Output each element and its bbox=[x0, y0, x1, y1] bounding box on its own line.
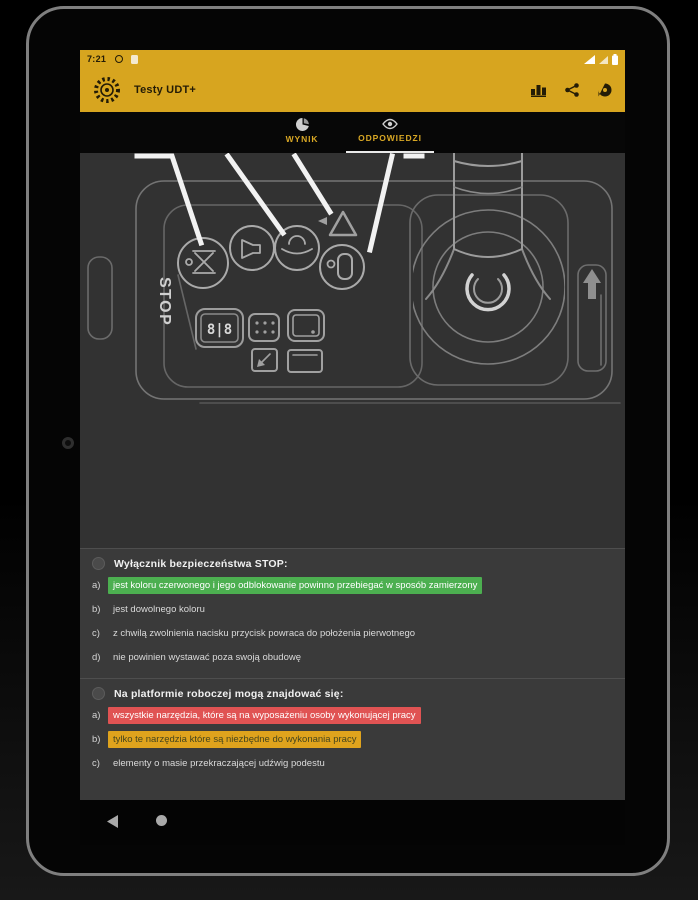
screen: 7:21 Testy UDT+ bbox=[80, 50, 625, 845]
home-button[interactable] bbox=[156, 815, 167, 826]
answer-letter: b) bbox=[92, 731, 108, 746]
screen-button bbox=[288, 310, 324, 341]
answer-letter: c) bbox=[92, 625, 108, 640]
diagonal-arrow-button bbox=[252, 349, 277, 371]
stop-label: STOP bbox=[156, 277, 173, 326]
answer-row: d) nie powinien wystawać poza swoją obud… bbox=[92, 649, 613, 666]
notification-ring-icon bbox=[115, 55, 123, 63]
question-block-2: Na platformie roboczej mogą znajdować si… bbox=[80, 678, 625, 784]
answer-letter: d) bbox=[92, 649, 108, 664]
scissor-lift-button bbox=[178, 238, 228, 288]
tab-wynik[interactable]: WYNIK bbox=[258, 112, 346, 153]
app-logo-icon bbox=[93, 76, 121, 104]
answer-text-correct: jest koloru czerwonego i jego odblokowan… bbox=[108, 577, 482, 594]
hour-meter-display: 8|8 bbox=[196, 309, 243, 347]
tab-bar: WYNIK ODPOWIEDZI bbox=[80, 112, 625, 153]
answer-row: a) jest koloru czerwonego i jego odbloko… bbox=[92, 577, 613, 594]
share-icon[interactable] bbox=[565, 83, 579, 97]
question-text: Na platformie roboczej mogą znajdować si… bbox=[114, 688, 344, 700]
back-button[interactable] bbox=[107, 815, 118, 828]
questions-panel: Wyłącznik bezpieczeństwa STOP: a) jest k… bbox=[80, 548, 625, 800]
pie-chart-icon bbox=[296, 118, 309, 131]
battery-icon bbox=[612, 54, 618, 65]
answer-text: nie powinien wystawać poza swoją obudowę bbox=[108, 649, 306, 666]
app-bar: Testy UDT+ bbox=[80, 68, 625, 112]
tab-label: ODPOWIEDZI bbox=[358, 133, 422, 143]
answer-row: a) wszystkie narzędzia, które są na wypo… bbox=[92, 707, 613, 724]
warning-triangle-icon bbox=[318, 212, 356, 235]
signal-icon bbox=[599, 55, 608, 64]
notification-app-icon bbox=[131, 55, 138, 64]
content-area: 8|8 bbox=[80, 153, 625, 800]
tab-label: WYNIK bbox=[286, 134, 319, 144]
answer-row: c) elementy o masie przekraczającej udźw… bbox=[92, 755, 613, 772]
answer-row: b) jest dowolnego koloru bbox=[92, 601, 613, 618]
leaderboard-icon[interactable] bbox=[531, 83, 546, 97]
status-bar: 7:21 bbox=[80, 50, 625, 68]
question-bullet-icon bbox=[92, 557, 105, 570]
up-arrow-icon bbox=[583, 269, 601, 299]
answer-text: elementy o masie przekraczającej udźwig … bbox=[108, 755, 330, 772]
clock: 7:21 bbox=[87, 54, 106, 64]
key-switch-button bbox=[320, 245, 364, 289]
answer-text-wrong: wszystkie narzędzia, które są na wyposaż… bbox=[108, 707, 421, 724]
answer-letter: a) bbox=[92, 577, 108, 592]
joystick bbox=[410, 153, 568, 385]
dots-button bbox=[249, 314, 279, 341]
left-grip bbox=[88, 257, 112, 339]
answer-text-selected: tylko te narzędzia które są niezbędne do… bbox=[108, 731, 361, 748]
tablet-frame: 7:21 Testy UDT+ bbox=[26, 6, 670, 876]
answer-text: jest dowolnego koloru bbox=[108, 601, 210, 618]
inner-panel-outline bbox=[164, 205, 422, 387]
control-panel-diagram: 8|8 bbox=[80, 153, 625, 548]
answer-letter: c) bbox=[92, 755, 108, 770]
up-arrow-slot bbox=[578, 265, 606, 371]
app-title: Testy UDT+ bbox=[134, 84, 196, 96]
wifi-icon bbox=[584, 55, 595, 64]
tab-odpowiedzi[interactable]: ODPOWIEDZI bbox=[346, 112, 434, 153]
hour-meter-value: 8|8 bbox=[207, 322, 232, 338]
horn-button bbox=[230, 226, 274, 270]
question-text: Wyłącznik bezpieczeństwa STOP: bbox=[114, 558, 288, 570]
answer-letter: b) bbox=[92, 601, 108, 616]
eye-icon bbox=[382, 118, 398, 130]
answer-text: z chwilą zwolnienia nacisku przycisk pow… bbox=[108, 625, 420, 642]
answer-row: c) z chwilą zwolnienia nacisku przycisk … bbox=[92, 625, 613, 642]
question-block-1: Wyłącznik bezpieczeństwa STOP: a) jest k… bbox=[80, 548, 625, 678]
answer-row: b) tylko te narzędzia które są niezbędne… bbox=[92, 731, 613, 748]
question-bullet-icon bbox=[92, 687, 105, 700]
remote-outline bbox=[136, 181, 612, 399]
comment-icon[interactable] bbox=[598, 83, 612, 97]
answer-letter: a) bbox=[92, 707, 108, 722]
front-camera bbox=[62, 437, 74, 449]
tray-button bbox=[288, 350, 322, 372]
navigation-bar bbox=[80, 800, 625, 845]
